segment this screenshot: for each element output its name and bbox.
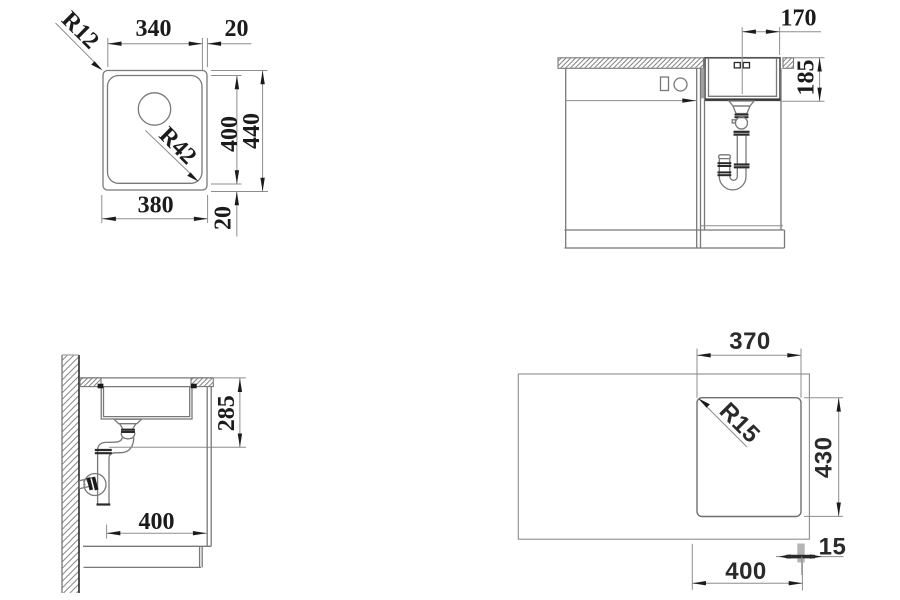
svg-text:285: 285 [214,395,240,431]
svg-text:20: 20 [211,206,237,230]
svg-text:400: 400 [139,509,175,535]
svg-text:20: 20 [225,16,249,42]
svg-text:370: 370 [729,328,771,355]
svg-text:185: 185 [794,60,820,96]
svg-text:170: 170 [781,6,817,32]
svg-text:440: 440 [239,113,265,149]
svg-text:380: 380 [138,193,174,219]
svg-text:340: 340 [136,16,172,42]
svg-text:400: 400 [725,558,767,585]
svg-text:15: 15 [819,534,847,561]
svg-text:430: 430 [810,437,837,479]
